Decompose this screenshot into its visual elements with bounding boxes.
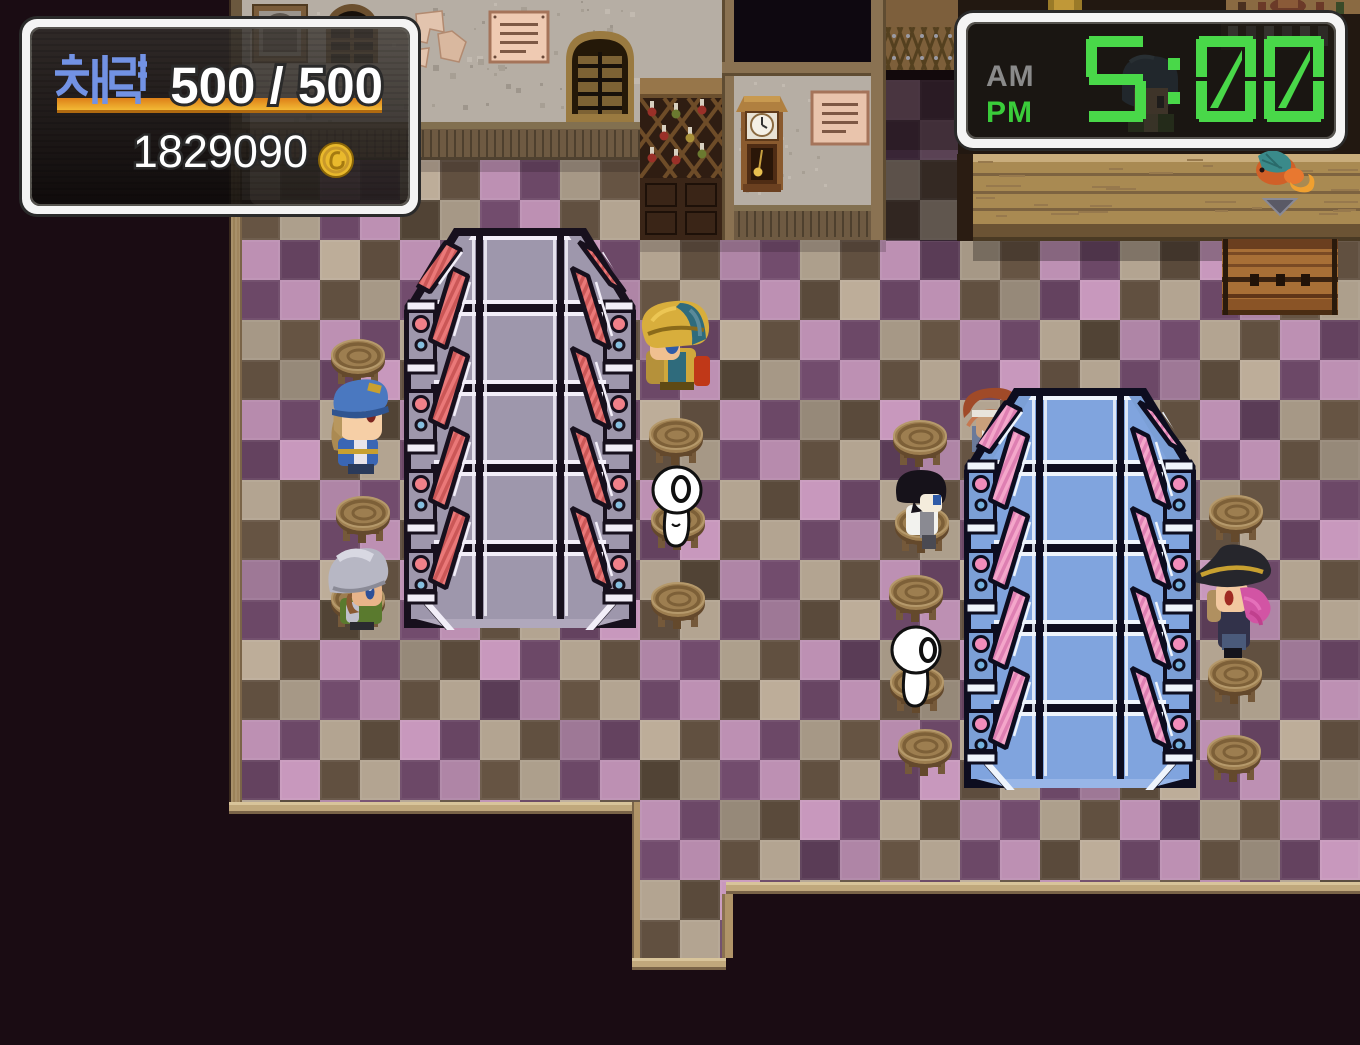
- svg-text:1829090: 1829090: [133, 126, 308, 177]
- svg-text:500 / 500: 500 / 500: [170, 57, 383, 114]
- svg-text:AM: AM: [986, 60, 1035, 93]
- svg-text:PM: PM: [986, 96, 1033, 129]
